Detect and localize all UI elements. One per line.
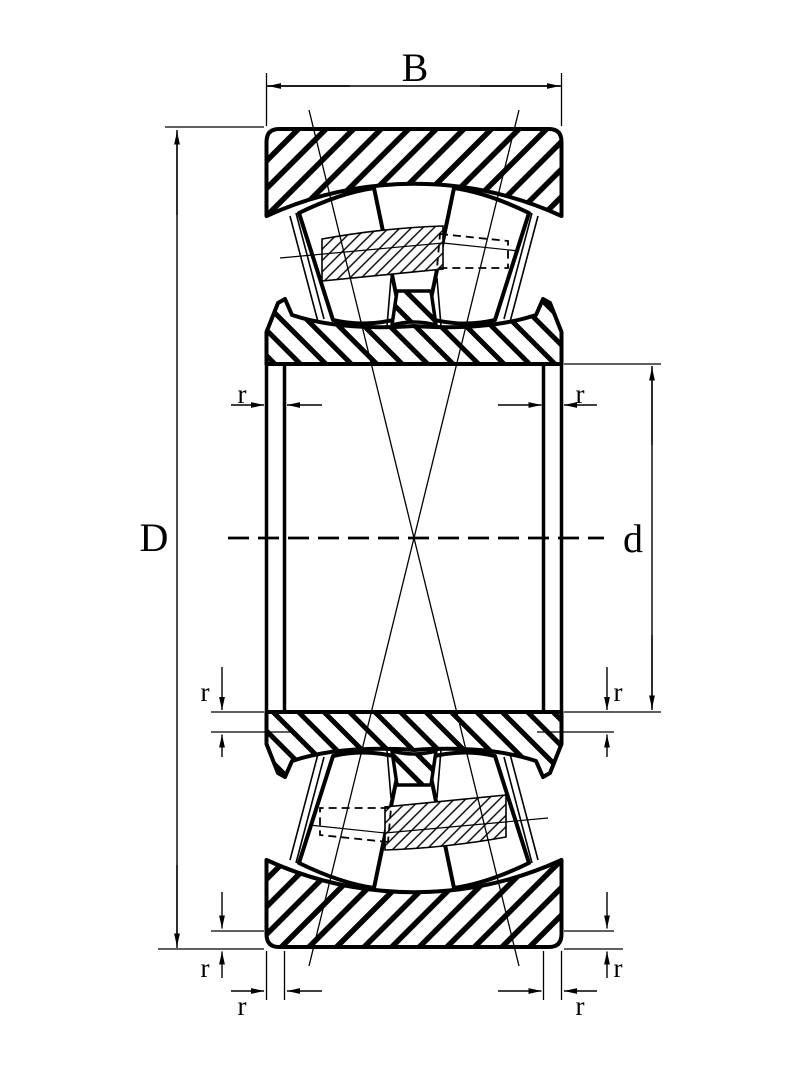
bearing-drawing: B D d r r r r r r r r <box>0 0 800 1066</box>
label-r-mid-left: r <box>201 677 210 707</box>
label-r-bottom-right-h: r <box>576 991 585 1021</box>
label-r-bottom-left-h: r <box>238 991 247 1021</box>
label-r-bottom-left-v: r <box>201 953 210 983</box>
label-d: d <box>623 516 643 561</box>
guide-flange <box>392 291 436 325</box>
label-r-mid-right: r <box>614 677 623 707</box>
extension-lines <box>158 73 661 1000</box>
label-D: D <box>140 515 169 560</box>
label-r-top-right: r <box>576 379 585 409</box>
bearing-section-lower <box>267 712 562 947</box>
label-r-top-left: r <box>238 379 247 409</box>
label-B: B <box>402 45 429 90</box>
label-r-bottom-right-v: r <box>614 953 623 983</box>
outer-ring <box>267 129 562 216</box>
bearing-section-upper <box>267 129 562 364</box>
bearing-drawing-svg: B D d r r r r r r r r <box>0 0 800 1066</box>
